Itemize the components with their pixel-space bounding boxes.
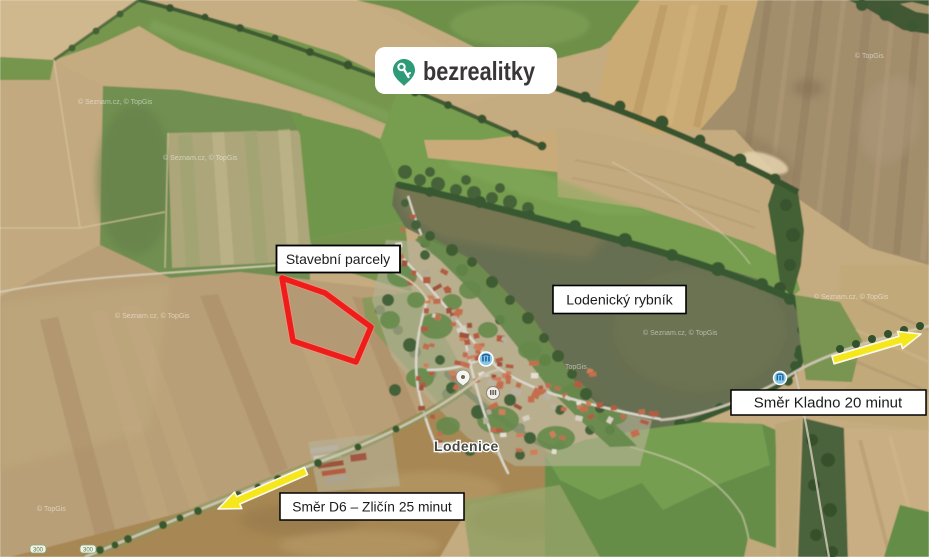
svg-text:Lodenice: Lodenice xyxy=(434,438,499,454)
svg-text:Lodenický rybník: Lodenický rybník xyxy=(566,293,673,309)
svg-text:Směr Kladno 20 minut: Směr Kladno 20 minut xyxy=(754,395,903,412)
svg-text:© Seznam.cz, © TopGis: © Seznam.cz, © TopGis xyxy=(78,98,153,106)
svg-text:© Seznam.cz, © TopGis: © Seznam.cz, © TopGis xyxy=(643,329,718,337)
svg-text:300: 300 xyxy=(83,548,94,554)
svg-text:300: 300 xyxy=(33,548,44,554)
svg-text:© Seznam.cz, © TopGis: © Seznam.cz, © TopGis xyxy=(115,312,190,320)
svg-text:Stavební parcely: Stavební parcely xyxy=(286,251,390,267)
svg-text:© TopGis: © TopGis xyxy=(37,505,66,513)
svg-text:© TopGis: © TopGis xyxy=(855,52,884,60)
svg-text:© Seznam.cz, © TopGis: © Seznam.cz, © TopGis xyxy=(163,154,238,162)
svg-text:© Seznam.cz, © TopGis: © Seznam.cz, © TopGis xyxy=(814,293,889,301)
svg-text:bezrealitky: bezrealitky xyxy=(423,56,535,86)
svg-text:Směr D6 – Zličín 25 minut: Směr D6 – Zličín 25 minut xyxy=(292,500,452,515)
svg-text:TopGis: TopGis xyxy=(565,364,587,371)
